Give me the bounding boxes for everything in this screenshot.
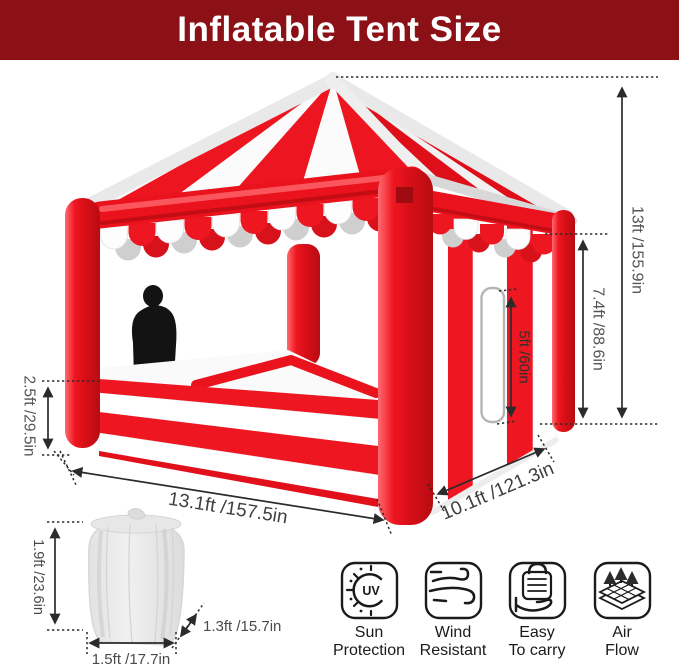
carry-bag-icon — [516, 564, 551, 611]
back-right-pillar — [552, 210, 575, 432]
feature-air-flow: Air Flow — [595, 563, 650, 659]
tent-illustration — [65, 72, 575, 525]
feature-easy-to-carry: Easy To carry — [509, 563, 566, 659]
bag-diameter-label: 1.3ft /15.7in — [203, 618, 281, 635]
front-right-pillar — [378, 168, 433, 525]
counter-wall — [99, 379, 378, 507]
bag-height-label: 1.9ft /23.6in — [30, 539, 46, 615]
feature-label-line2: Protection — [333, 642, 405, 659]
feature-label-line2: To carry — [509, 642, 566, 659]
storage-bag — [89, 509, 184, 646]
tent-diagram: 13ft /155.9in 7.4ft /88.6in 5ft /60in 2.… — [0, 0, 679, 667]
bag-diameter-arrow — [181, 615, 196, 636]
interior-pillar — [287, 244, 320, 366]
uv-sun-icon: UV — [347, 566, 382, 615]
side-height-label: 7.4ft /88.6in — [590, 287, 607, 371]
air-vent — [396, 187, 413, 203]
total-height-label: 13ft /155.9in — [629, 206, 646, 294]
feature-list: UV Sun Protection — [333, 563, 650, 659]
feature-label-line1: Air — [612, 624, 632, 641]
feature-label-line1: Wind — [435, 624, 471, 641]
bag-width-label: 1.5ft /17.7in — [92, 651, 170, 667]
counter-height-label: 2.5ft /29.5in — [21, 375, 38, 456]
wind-icon — [430, 569, 474, 603]
feature-label-line2: Resistant — [420, 642, 487, 659]
inflatable-tent-infographic: Inflatable Tent Size — [0, 0, 679, 667]
door-height-label: 5ft /60in — [516, 330, 533, 383]
uv-icon-text: UV — [362, 584, 380, 598]
feature-label-line2: Flow — [605, 642, 639, 659]
front-left-pillar — [65, 198, 100, 448]
bag-height-leader-lines — [47, 522, 83, 630]
feature-sun-protection: UV Sun Protection — [333, 563, 405, 659]
feature-label-line1: Sun — [355, 624, 383, 641]
air-flow-icon — [600, 569, 644, 609]
feature-label-line1: Easy — [519, 624, 555, 641]
feature-wind-resistant: Wind Resistant — [420, 563, 487, 659]
